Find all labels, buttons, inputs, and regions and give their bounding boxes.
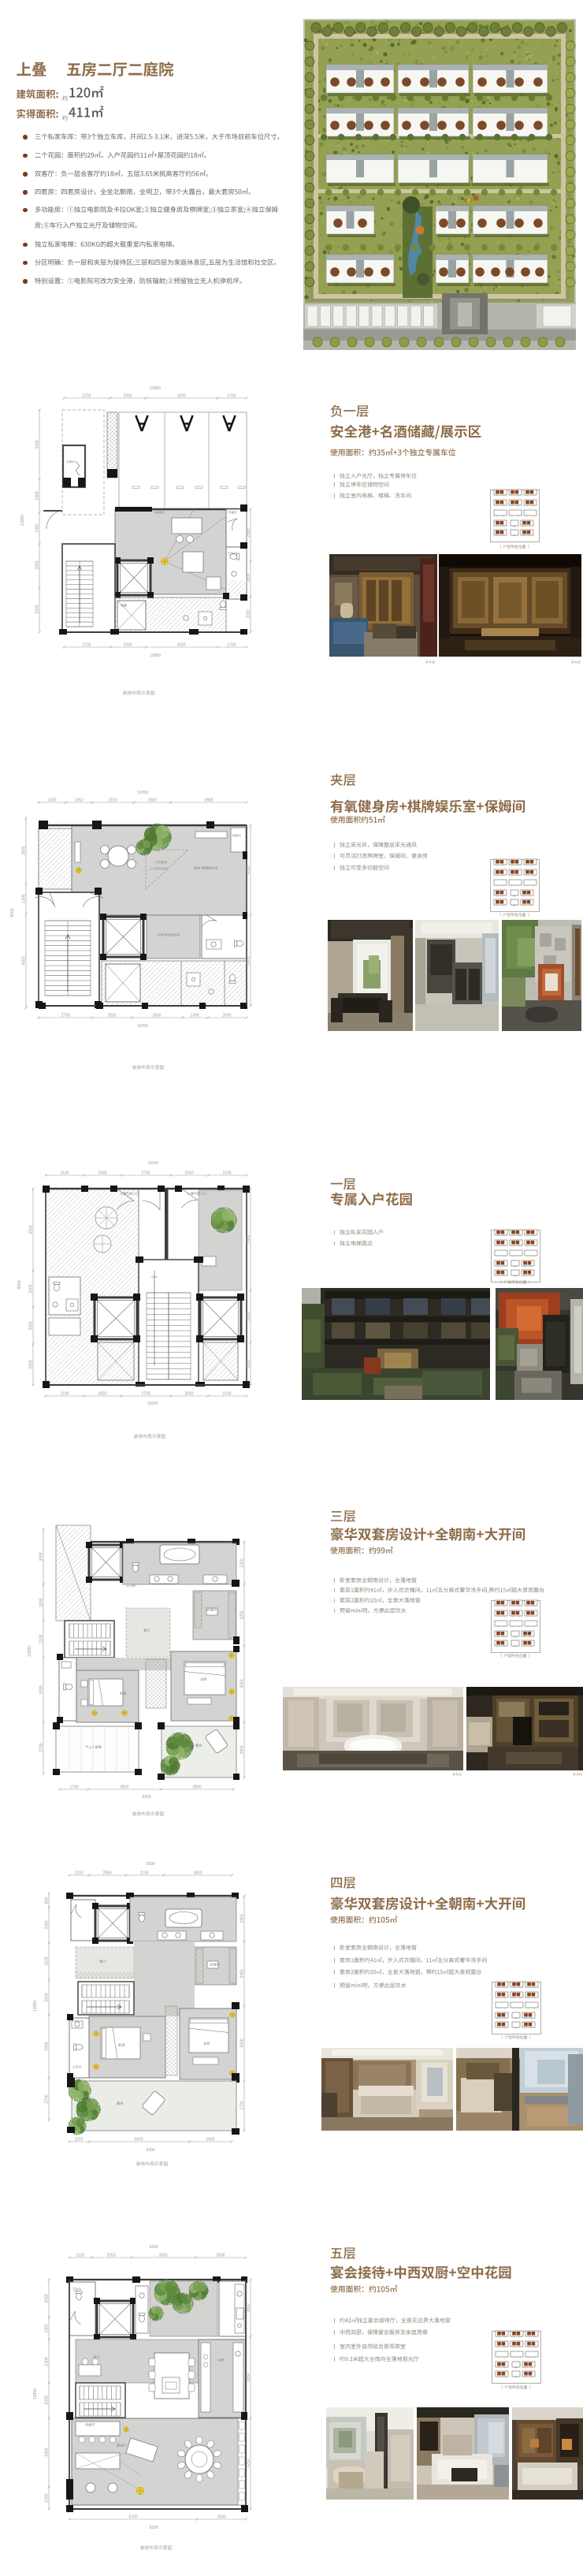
svg-text:2050: 2050 [123,643,132,648]
svg-text:2450: 2450 [247,528,251,537]
svg-text:2000: 2000 [45,1993,50,2001]
svg-text:2050: 2050 [45,2294,50,2302]
svg-text:9300: 9300 [146,2148,154,2153]
svg-text:2050: 2050 [107,1014,116,1018]
svg-text:1300: 1300 [45,2324,50,2332]
svg-text:2100: 2100 [247,1359,251,1368]
svg-text:3450: 3450 [45,2448,50,2456]
svg-text:9300: 9300 [149,2245,158,2250]
svg-text:1300: 1300 [22,894,27,903]
svg-text:2000: 2000 [45,2395,50,2404]
svg-text:2100: 2100 [45,1956,50,1965]
svg-text:2700: 2700 [82,643,91,648]
svg-text:1900: 1900 [147,798,156,803]
svg-text:2000: 2000 [247,573,251,582]
svg-text:10700: 10700 [137,1024,148,1029]
svg-text:1700: 1700 [227,394,236,399]
svg-text:2100: 2100 [222,1392,231,1397]
svg-text:2450: 2450 [35,523,40,532]
svg-text:1700: 1700 [227,643,236,648]
svg-text:2600: 2600 [216,2254,225,2258]
svg-text:2400: 2400 [45,2357,50,2366]
svg-text:3800: 3800 [192,1785,201,1790]
svg-text:2100: 2100 [139,1871,148,1876]
svg-text:11000: 11000 [147,1402,158,1406]
svg-text:4050: 4050 [22,956,27,965]
svg-text:8000: 8000 [10,908,15,917]
svg-text:1700: 1700 [69,1785,78,1790]
svg-text:10700: 10700 [137,791,148,795]
svg-text:12000: 12000 [20,515,25,526]
svg-text:2000: 2000 [247,609,251,618]
svg-text:1900: 1900 [35,491,40,500]
svg-text:2700: 2700 [240,2101,245,2109]
svg-text:2650: 2650 [247,2303,251,2312]
svg-text:2600: 2600 [206,2138,214,2142]
svg-text:2100: 2100 [39,1634,44,1643]
svg-text:3450: 3450 [39,1685,44,1694]
svg-text:2750: 2750 [61,1014,69,1018]
svg-text:11000: 11000 [147,1161,158,1166]
svg-text:1300: 1300 [190,1014,199,1018]
svg-text:4000: 4000 [247,956,251,965]
svg-text:4200: 4200 [176,394,185,399]
svg-text:2050: 2050 [98,1392,106,1397]
svg-text:2050: 2050 [98,1171,106,1176]
svg-text:4000: 4000 [247,865,251,874]
svg-text:4500: 4500 [247,1234,251,1243]
svg-text:11950: 11950 [33,2388,38,2399]
svg-text:800: 800 [45,1897,50,1904]
svg-text:2000: 2000 [39,1598,44,1606]
svg-text:2050: 2050 [102,1871,111,1876]
svg-text:8550: 8550 [17,1280,22,1289]
svg-text:10650: 10650 [150,386,161,391]
svg-text:4000: 4000 [35,440,40,449]
svg-text:2250: 2250 [240,1558,245,1567]
svg-text:2000: 2000 [35,560,40,569]
svg-text:2050: 2050 [184,1171,193,1176]
svg-text:2100: 2100 [60,1392,69,1397]
svg-text:2000: 2000 [29,1284,34,1293]
svg-text:2600: 2600 [152,1014,161,1018]
svg-text:3850: 3850 [247,2373,251,2381]
svg-text:2100: 2100 [222,1171,231,1176]
svg-text:1150: 1150 [76,2254,85,2258]
svg-text:12250: 12250 [28,1646,32,1657]
svg-text:1400: 1400 [47,798,56,803]
svg-text:2600: 2600 [217,2515,225,2520]
svg-text:2050: 2050 [29,1360,34,1368]
svg-text:4500: 4500 [29,1225,34,1234]
svg-text:3300: 3300 [158,2254,167,2258]
svg-text:2150: 2150 [108,798,117,803]
svg-text:13050: 13050 [33,2001,38,2012]
svg-text:2700: 2700 [39,1743,44,1751]
svg-text:2050: 2050 [106,2254,115,2258]
svg-text:2450: 2450 [240,1914,245,1923]
svg-text:2100: 2100 [60,1171,69,1176]
svg-text:2700: 2700 [45,2094,50,2103]
svg-text:2800: 2800 [22,846,27,854]
svg-text:3450: 3450 [240,1969,245,1978]
svg-text:2900: 2900 [240,1745,245,1754]
svg-text:2050: 2050 [123,394,132,399]
svg-text:6700: 6700 [128,2515,137,2520]
svg-text:4250: 4250 [247,2459,251,2467]
svg-text:2700: 2700 [141,1392,150,1397]
svg-text:3450: 3450 [45,2042,50,2050]
svg-text:1100: 1100 [75,2138,84,2142]
svg-text:4200: 4200 [176,643,185,648]
svg-text:1100: 1100 [75,1871,84,1876]
svg-text:3000: 3000 [39,1552,44,1561]
svg-text:10650: 10650 [150,653,161,658]
svg-text:9300: 9300 [146,1862,154,1867]
svg-text:2050: 2050 [184,1392,193,1397]
svg-text:1050: 1050 [45,2493,50,2502]
svg-text:2700: 2700 [141,1171,150,1176]
svg-text:3800: 3800 [120,1785,128,1790]
svg-text:3250: 3250 [240,1610,245,1619]
svg-text:9300: 9300 [149,2526,158,2530]
svg-text:3900: 3900 [204,798,213,803]
svg-text:1350: 1350 [74,798,83,803]
svg-text:2700: 2700 [82,394,91,399]
svg-text:4000: 4000 [240,2038,245,2047]
svg-text:4050: 4050 [240,1679,245,1688]
svg-text:9300: 9300 [142,1795,150,1800]
svg-text:2600: 2600 [247,1312,251,1320]
svg-text:3800: 3800 [193,1871,202,1876]
svg-text:2000: 2000 [45,1920,50,1929]
svg-text:2000: 2000 [222,1014,231,1018]
svg-text:2000: 2000 [35,605,40,613]
svg-text:2050: 2050 [29,1321,34,1330]
svg-text:5600: 5600 [134,2138,143,2142]
